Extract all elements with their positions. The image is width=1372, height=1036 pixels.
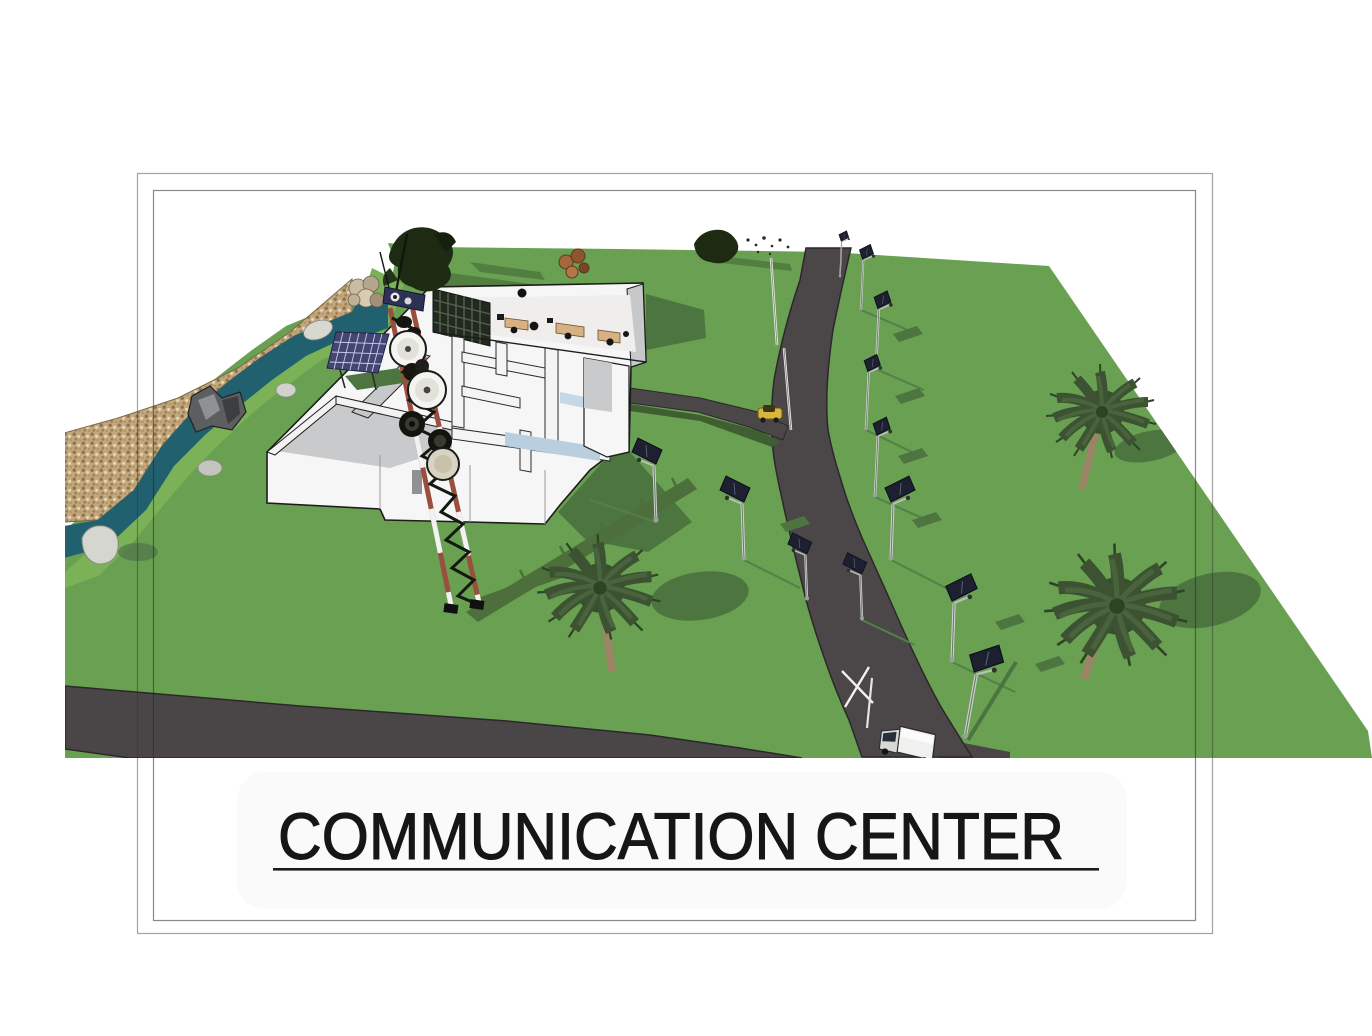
svg-text:COMMUNICATION CENTER: COMMUNICATION CENTER bbox=[278, 799, 1064, 873]
